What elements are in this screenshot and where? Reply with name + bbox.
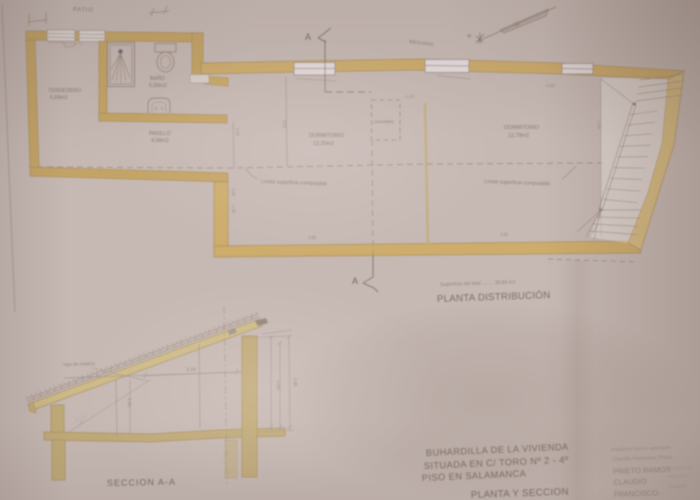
svg-text:4,99: 4,99 <box>500 232 509 237</box>
